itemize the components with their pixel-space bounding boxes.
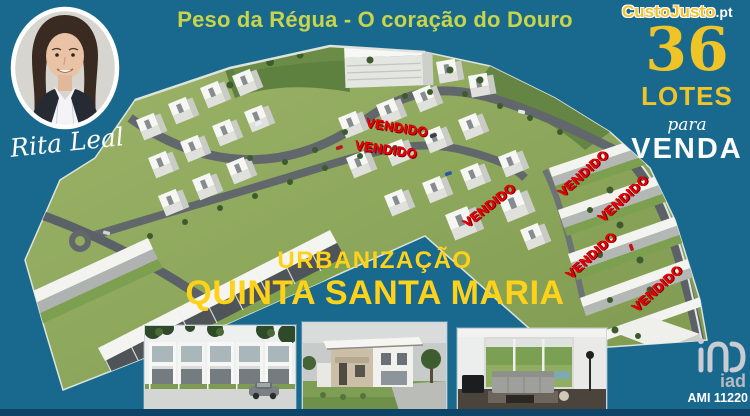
thumbnail-townhouses: [144, 325, 296, 410]
thumbnail-house-render: [302, 322, 447, 412]
page-title: Peso da Régua - O coração do Douro: [150, 7, 600, 33]
agency-license: AMI 11220: [686, 391, 748, 405]
offer-preposition: para: [628, 115, 746, 135]
offer-panel: 36 LOTES para VENDA: [628, 22, 746, 164]
agent-photo: [8, 5, 122, 131]
lot-count: 36: [628, 22, 746, 79]
project-kicker: URBANIZAÇÃO: [95, 247, 655, 275]
lot-unit-label: LOTES: [628, 81, 746, 112]
thumbnail-interior: [457, 328, 607, 410]
project-title-block: URBANIZAÇÃO QUINTA SANTA MARIA: [95, 247, 655, 312]
bottom-strip: [0, 409, 750, 416]
project-name: QUINTA SANTA MARIA: [95, 276, 655, 312]
advert-canvas: Peso da Régua - O coração do Douro Custo…: [0, 0, 750, 416]
agency-brand: iad: [686, 372, 748, 390]
agency-logo-block: iad AMI 11220: [686, 334, 748, 405]
offer-action-label: VENDA: [628, 135, 746, 164]
iad-logo-icon: [694, 334, 746, 376]
